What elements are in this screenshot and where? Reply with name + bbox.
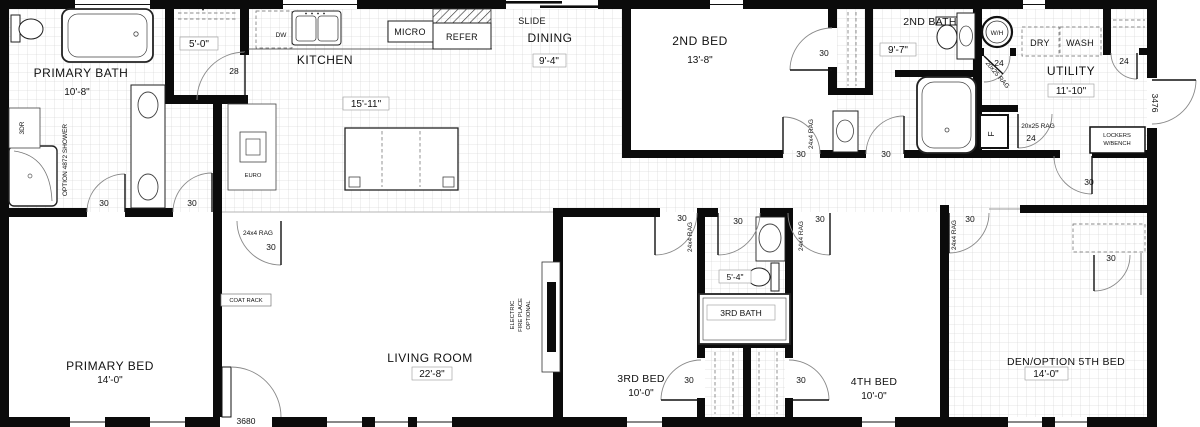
label-washer: WASH [1066,38,1094,48]
label-slide: SLIDE [518,16,546,26]
door-size-3680: 3680 [237,416,256,426]
door-size-30: 30 [187,198,197,208]
label-dryer: DRY [1030,38,1050,48]
kitchen-island [345,128,458,190]
sink-primary-1 [138,92,158,118]
dim-2nd-bath: 9'-7" [888,45,908,56]
door-size-30: 30 [965,214,975,224]
door-size-30: 30 [1106,253,1116,263]
label-fireplace-1: ELECTRIC [510,301,516,330]
door-size-30: 30 [796,149,806,159]
door-size-30: 30 [796,375,806,385]
dim-den: 14'-0" [1033,369,1059,380]
label-lockers-1: LOCKERS [1103,133,1131,139]
door-size-30: 30 [266,242,276,252]
room-label-utility: UTILITY [1047,64,1095,78]
note-rag-24x4: 24x4 RAG [687,222,694,252]
label-water-heater: W/H [991,30,1004,37]
dim-3rd-bed: 10'-0" [628,388,654,399]
room-label-primary-bed: PRIMARY BED [66,359,154,373]
label-3dr: 3DR [19,121,26,134]
lockers-bench [1090,127,1145,153]
door-size-24: 24 [1026,133,1036,143]
dim-dining: 9'-4" [539,56,559,67]
door-size-30: 30 [684,375,694,385]
floor-plan-page: PRIMARY BATH 10'-8" 5'-0" KITCHEN 15'-11… [0,0,1200,427]
dim-primary-bath: 10'-8" [64,87,90,98]
door-size-30: 30 [677,213,687,223]
door-size-24: 24 [1119,56,1129,66]
label-lockers-2: W/BENCH [1103,141,1130,147]
room-label-living-room: LIVING ROOM [387,351,473,365]
sink-primary-2 [138,174,158,200]
entry-door-leaf [222,367,231,417]
door-size-3476: 3476 [1150,94,1160,113]
room-label-den: DEN/OPTION 5TH BED [1007,356,1125,368]
dim-primary-closet: 5'-0" [189,39,209,50]
label-furnace: F [986,131,996,136]
appliance-label-dw: DW [276,32,288,39]
dim-4th-bed: 10'-0" [861,391,887,402]
room-label-2nd-bath: 2ND BATH [903,16,957,28]
label-euro: EURO [245,173,262,179]
refer-hatch [433,9,491,23]
note-shower-option: OPTION 4872 SHOWER [62,124,69,197]
appliance-label-micro: MICRO [394,27,426,37]
dim-living-room: 22'-8" [419,369,445,380]
door-size-30: 30 [99,198,109,208]
room-label-3rd-bed: 3RD BED [617,373,665,385]
shower-primary [9,146,57,206]
note-rag-24x4: 24x4 RAG [808,119,815,149]
appliance-label-refer: REFER [446,32,478,42]
label-coat-rack: COAT RACK [229,298,262,304]
note-rag-20x25: 20x25 RAG [1021,123,1055,130]
dim-kitchen: 15'-11" [351,99,382,110]
room-label-2nd-bed: 2ND BED [672,34,728,48]
note-rag-24x4: 24x4 RAG [951,220,958,250]
room-label-kitchen: KITCHEN [297,53,353,67]
dim-utility: 11'-10" [1056,86,1087,97]
room-label-primary-bath: PRIMARY BATH [34,66,129,80]
floor-plan: PRIMARY BATH 10'-8" 5'-0" KITCHEN 15'-11… [0,0,1200,427]
room-label-4th-bed: 4TH BED [851,376,898,388]
room-label-3rd-bath: 3RD BATH [720,308,761,318]
room-label-dining: DINING [528,31,573,45]
label-fireplace-3: OPTIONAL [526,300,532,330]
dim-2nd-bed: 13'-8" [687,55,713,66]
dim-primary-bed: 14'-0" [97,375,123,386]
door-size-30: 30 [733,216,743,226]
door-size-30: 30 [819,48,829,58]
door-size-30: 30 [1084,177,1094,187]
door-size-30: 30 [815,214,825,224]
door-size-30: 30 [881,149,891,159]
door-size-28: 28 [229,66,239,76]
note-rag-24x4: 24x4 RAG [243,230,273,237]
dim-3rd-bath: 5'-4" [727,272,744,282]
label-fireplace-2: FIRE PLACE [518,298,524,332]
note-rag-24x4: 24x4 RAG [798,221,805,251]
